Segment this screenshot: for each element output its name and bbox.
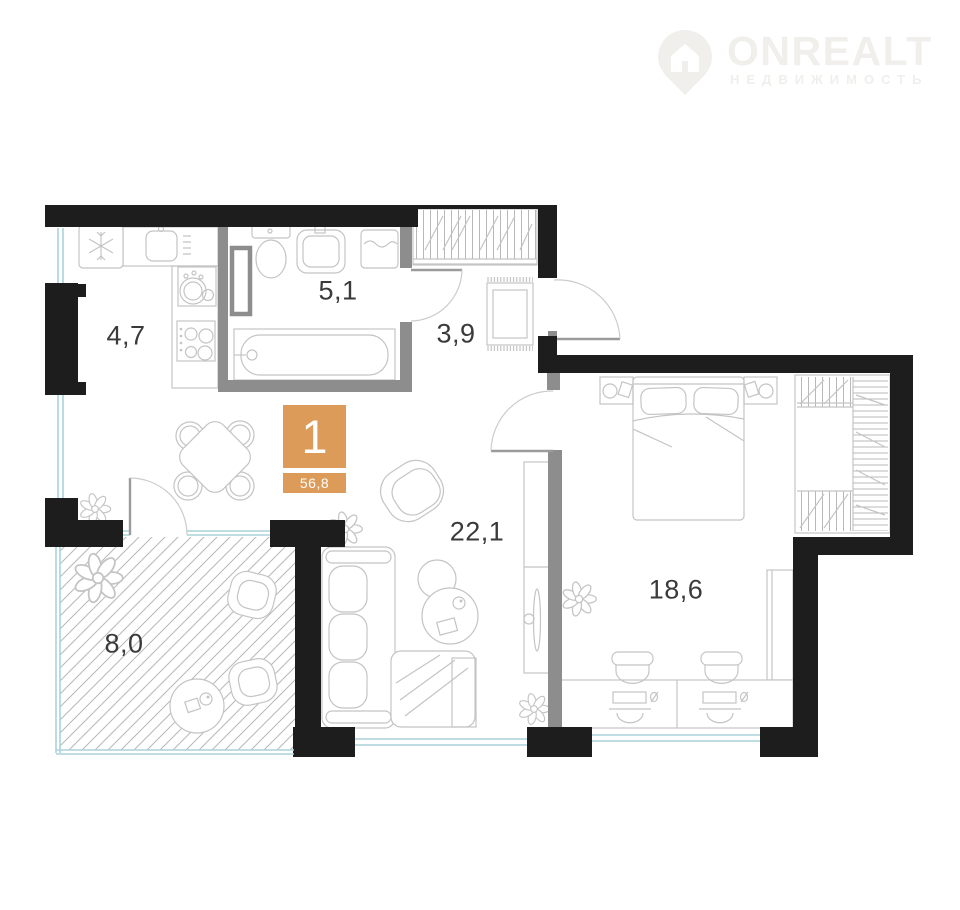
bathroom-sink-icon [297,226,345,273]
balcony-table-icon [170,679,224,733]
room-area-label-living-room: 22,1 [450,517,505,548]
laundry-basket-icon [361,230,398,268]
fridge-icon [79,225,123,268]
bedroom-door [491,391,553,451]
bedroom-shelf-icon [767,570,793,680]
tv-console-icon [524,462,549,673]
room-area-label-hallway: 3,9 [436,319,475,350]
nightstand-icon [744,377,777,404]
nightstand-icon [600,377,633,404]
coffee-table-icon [418,560,478,644]
bathtub-icon [234,329,395,380]
hallway-closet-icon [413,209,537,265]
bedroom-plant-icon [562,581,597,617]
hallway-rug-icon [487,277,533,351]
room-area-label-bathroom: 5,1 [318,276,357,307]
logo-tagline: НЕДВИЖИМОСТЬ [730,72,928,87]
floor-plan-page: 4,7 5,1 3,9 22,1 18,6 8,0 1 56,8 ONREALT… [0,0,960,910]
desk-icon [560,680,793,728]
kitchen-sink-icon [146,227,191,262]
floor-plan-drawing [0,0,960,910]
bed-icon [633,377,744,520]
desk-chair-icon [612,652,653,683]
kitchen-counter [123,227,218,388]
bathroom-door [411,270,462,321]
washer-icon [178,267,216,306]
rooms-count: 1 [283,405,346,468]
logo-pin-icon [658,30,712,95]
entrance-door [554,280,620,339]
wardrobe-icon [795,375,890,533]
duct-shaft [232,248,250,314]
dining-table-icon [174,417,255,500]
logo-brand: ONREALT [727,28,933,75]
toilet-icon [252,225,290,278]
armchair-icon [372,452,452,530]
chaise-lounge-icon [391,651,476,727]
room-area-label-kitchen: 4,7 [106,321,145,352]
stove-icon [177,321,215,361]
area-badge: 1 56,8 [283,405,346,493]
room-area-label-bedroom: 18,6 [649,575,704,606]
total-area: 56,8 [283,473,346,493]
room-area-label-balcony: 8,0 [104,629,143,660]
desk-chair-icon [701,652,742,683]
sofa-icon [322,547,395,728]
